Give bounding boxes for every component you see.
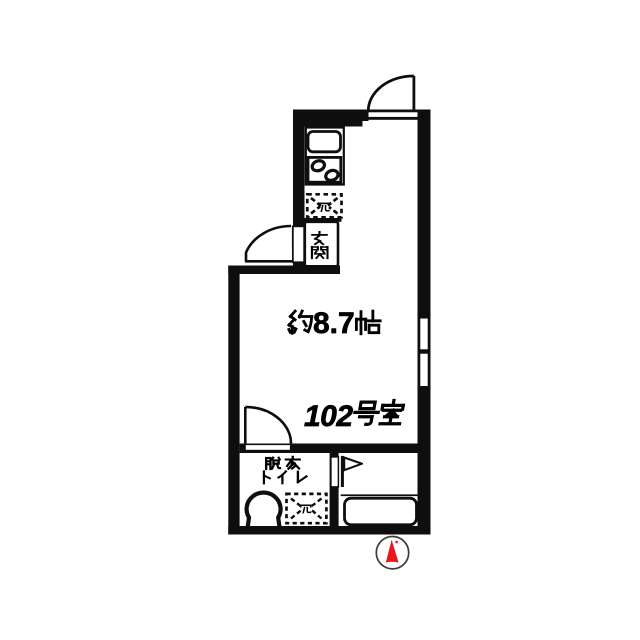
svg-text:102: 102 — [304, 400, 353, 433]
svg-text:8.7: 8.7 — [313, 307, 355, 340]
